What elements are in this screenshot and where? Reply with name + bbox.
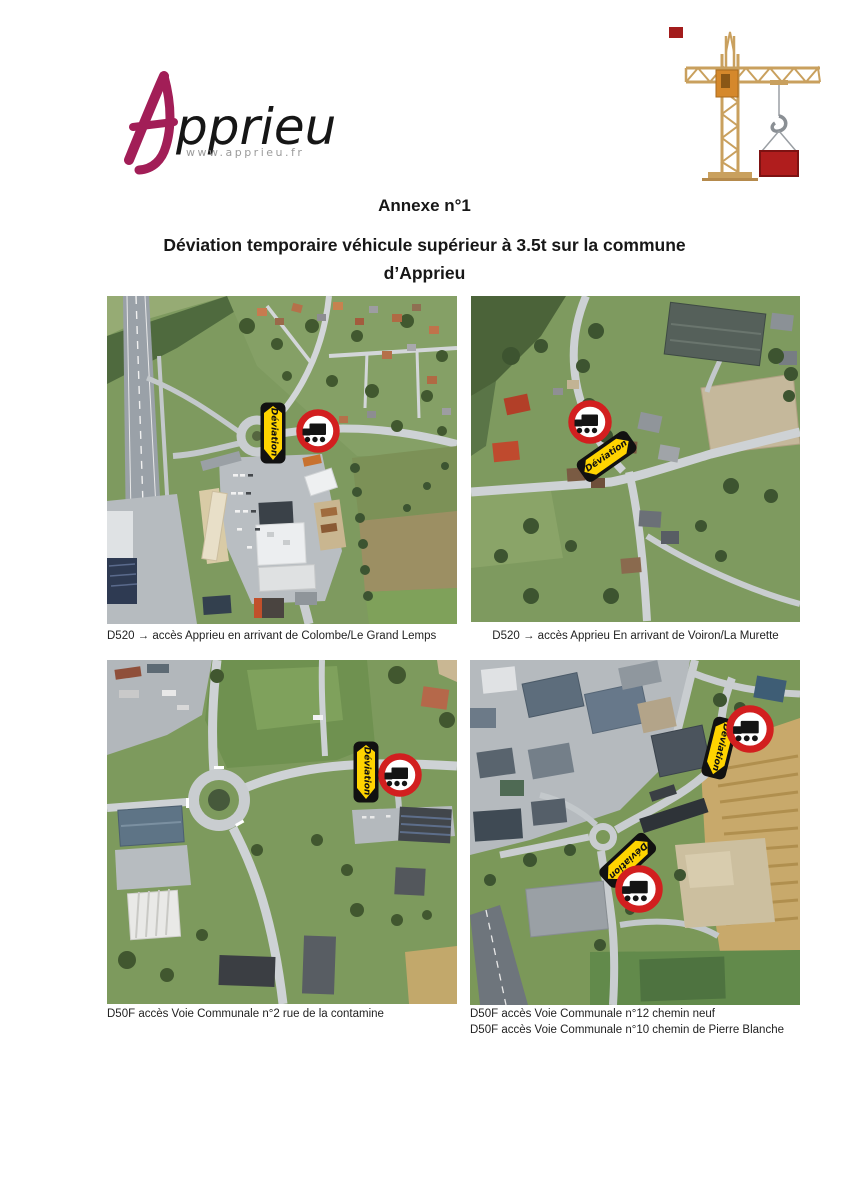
map-d520-voiron: Déviation [471, 296, 800, 622]
caption-map-4-line-2: D50F accès Voie Communale n°10 chemin de… [470, 1023, 810, 1039]
caption-map-4-line-1: D50F accès Voie Communale n°12 chemin ne… [470, 1007, 810, 1023]
map-d50f-vc2: Déviation [107, 660, 457, 1004]
crane-icon [666, 24, 832, 184]
document-subtitle: Déviation temporaire véhicule supérieur … [0, 231, 849, 287]
apprieu-logo: pprieu www.apprieu.fr [120, 70, 335, 175]
crane-sling-left [762, 131, 779, 151]
aerial-photo-2 [471, 296, 800, 622]
crane-cab-window [721, 74, 730, 88]
crane-load [760, 151, 798, 176]
subtitle-line-1: Déviation temporaire véhicule supérieur … [0, 231, 849, 259]
crane-sling-right [779, 131, 796, 151]
aerial-photo-1 [107, 296, 457, 624]
crane-trolley [770, 80, 788, 85]
aerial-photo-3 [107, 660, 457, 1004]
crane-red-mark [669, 27, 683, 38]
subtitle-line-2: d’Apprieu [0, 259, 849, 287]
caption-map-4: D50F accès Voie Communale n°12 chemin ne… [470, 1007, 810, 1038]
aerial-photo-4 [470, 660, 800, 1005]
annex-title: Annexe n°1 [0, 196, 849, 216]
crane-art [666, 24, 832, 184]
crane-base [708, 172, 752, 178]
logo-letter-a [129, 76, 174, 170]
logo-website: www.apprieu.fr [186, 146, 304, 159]
caption-map-3: D50F accès Voie Communale n°2 rue de la … [107, 1007, 457, 1023]
caption-map-2: D520 → accès Apprieu En arrivant de Voir… [471, 629, 800, 645]
document-page: pprieu www.apprieu.fr [0, 0, 849, 1200]
caption-map-1: D520 → accès Apprieu en arrivant de Colo… [107, 629, 457, 645]
crane-structure [686, 32, 820, 172]
crane-hook [772, 116, 786, 131]
crane-base-foot [702, 178, 758, 181]
map-d50f-vc12-vc10: Déviation Déviation [470, 660, 800, 1005]
apprieu-logo-art: pprieu www.apprieu.fr [120, 70, 335, 175]
map-d520-colombe: Déviation [107, 296, 457, 624]
